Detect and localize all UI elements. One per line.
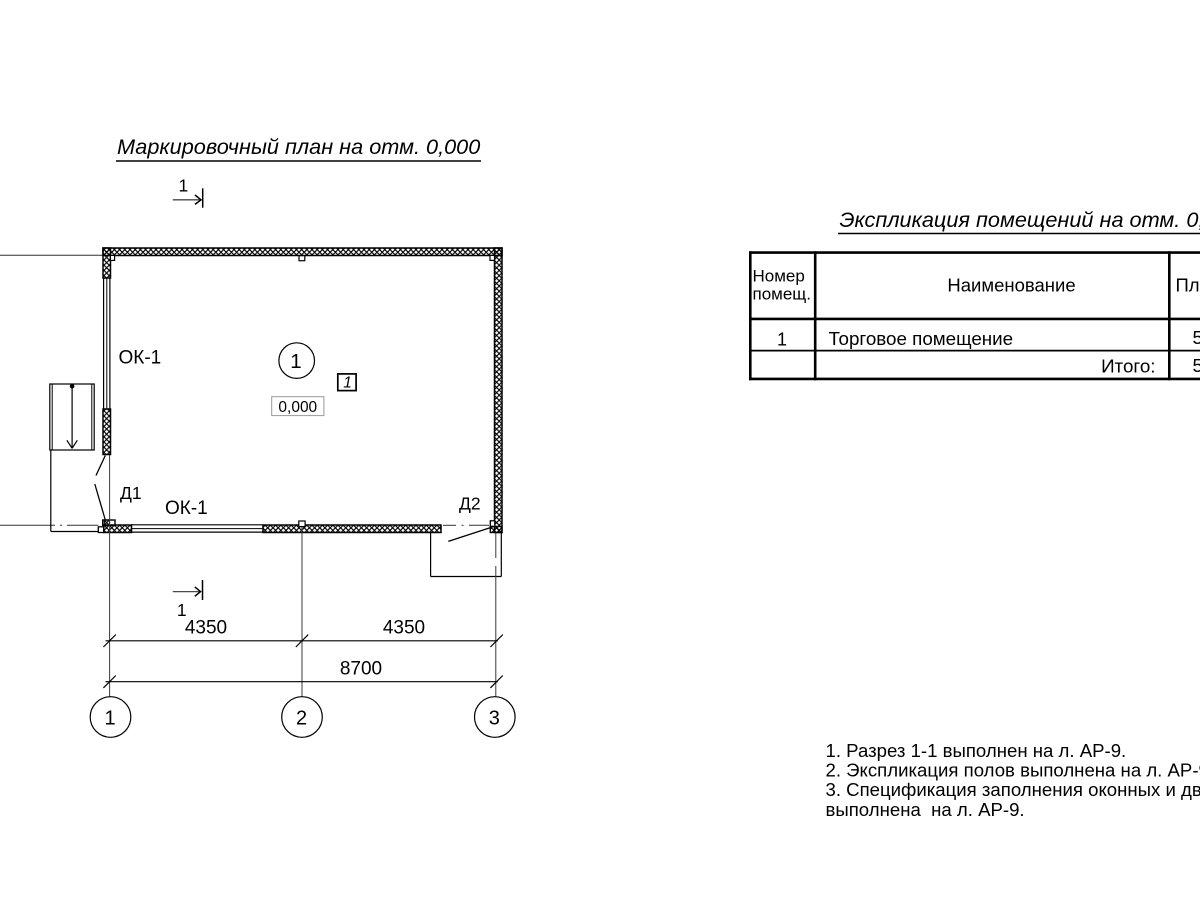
svg-text:1: 1 [179,176,189,196]
svg-text:помещ.: помещ. [753,285,812,304]
svg-text:0,000: 0,000 [278,399,317,416]
svg-text:2. Экспликация полов выполнена: 2. Экспликация полов выполнена на л. АР-… [826,760,1200,781]
svg-text:4350: 4350 [185,618,227,639]
svg-text:8700: 8700 [340,659,382,680]
svg-text:Маркировочный план на отм. 0,0: Маркировочный план на отм. 0,000 [117,134,480,159]
svg-text:1: 1 [777,330,787,350]
svg-text:2: 2 [296,708,307,730]
svg-text:Экспликация помещений на отм.: Экспликация помещений на отм. 0,000 [840,207,1200,232]
svg-text:1: 1 [343,375,352,392]
svg-text:Площадь, м: Площадь, м [1176,275,1200,296]
svg-text:3. Спецификация заполнения око: 3. Спецификация заполнения оконных и две… [826,779,1200,800]
svg-text:Наименование: Наименование [947,275,1075,296]
svg-text:1: 1 [104,708,115,730]
svg-text:Торговое помещение: Торговое помещение [829,328,1014,349]
svg-text:Д2: Д2 [459,494,481,514]
svg-text:3: 3 [489,708,500,730]
svg-text:ОК-1: ОК-1 [119,348,162,369]
svg-text:Итого:: Итого: [1101,356,1155,377]
svg-text:Д1: Д1 [120,483,142,503]
svg-text:54,3: 54,3 [1193,355,1200,376]
svg-text:54,3: 54,3 [1193,327,1200,348]
svg-text:Номер: Номер [753,267,805,286]
svg-text:4350: 4350 [383,618,425,639]
svg-text:1: 1 [290,350,301,373]
svg-text:выполнена на л. АР-9.: выполнена на л. АР-9. [826,799,1025,820]
svg-text:1. Разрез 1-1 выполнен на л. А: 1. Разрез 1-1 выполнен на л. АР-9. [826,740,1127,761]
svg-text:ОК-1: ОК-1 [165,498,208,519]
